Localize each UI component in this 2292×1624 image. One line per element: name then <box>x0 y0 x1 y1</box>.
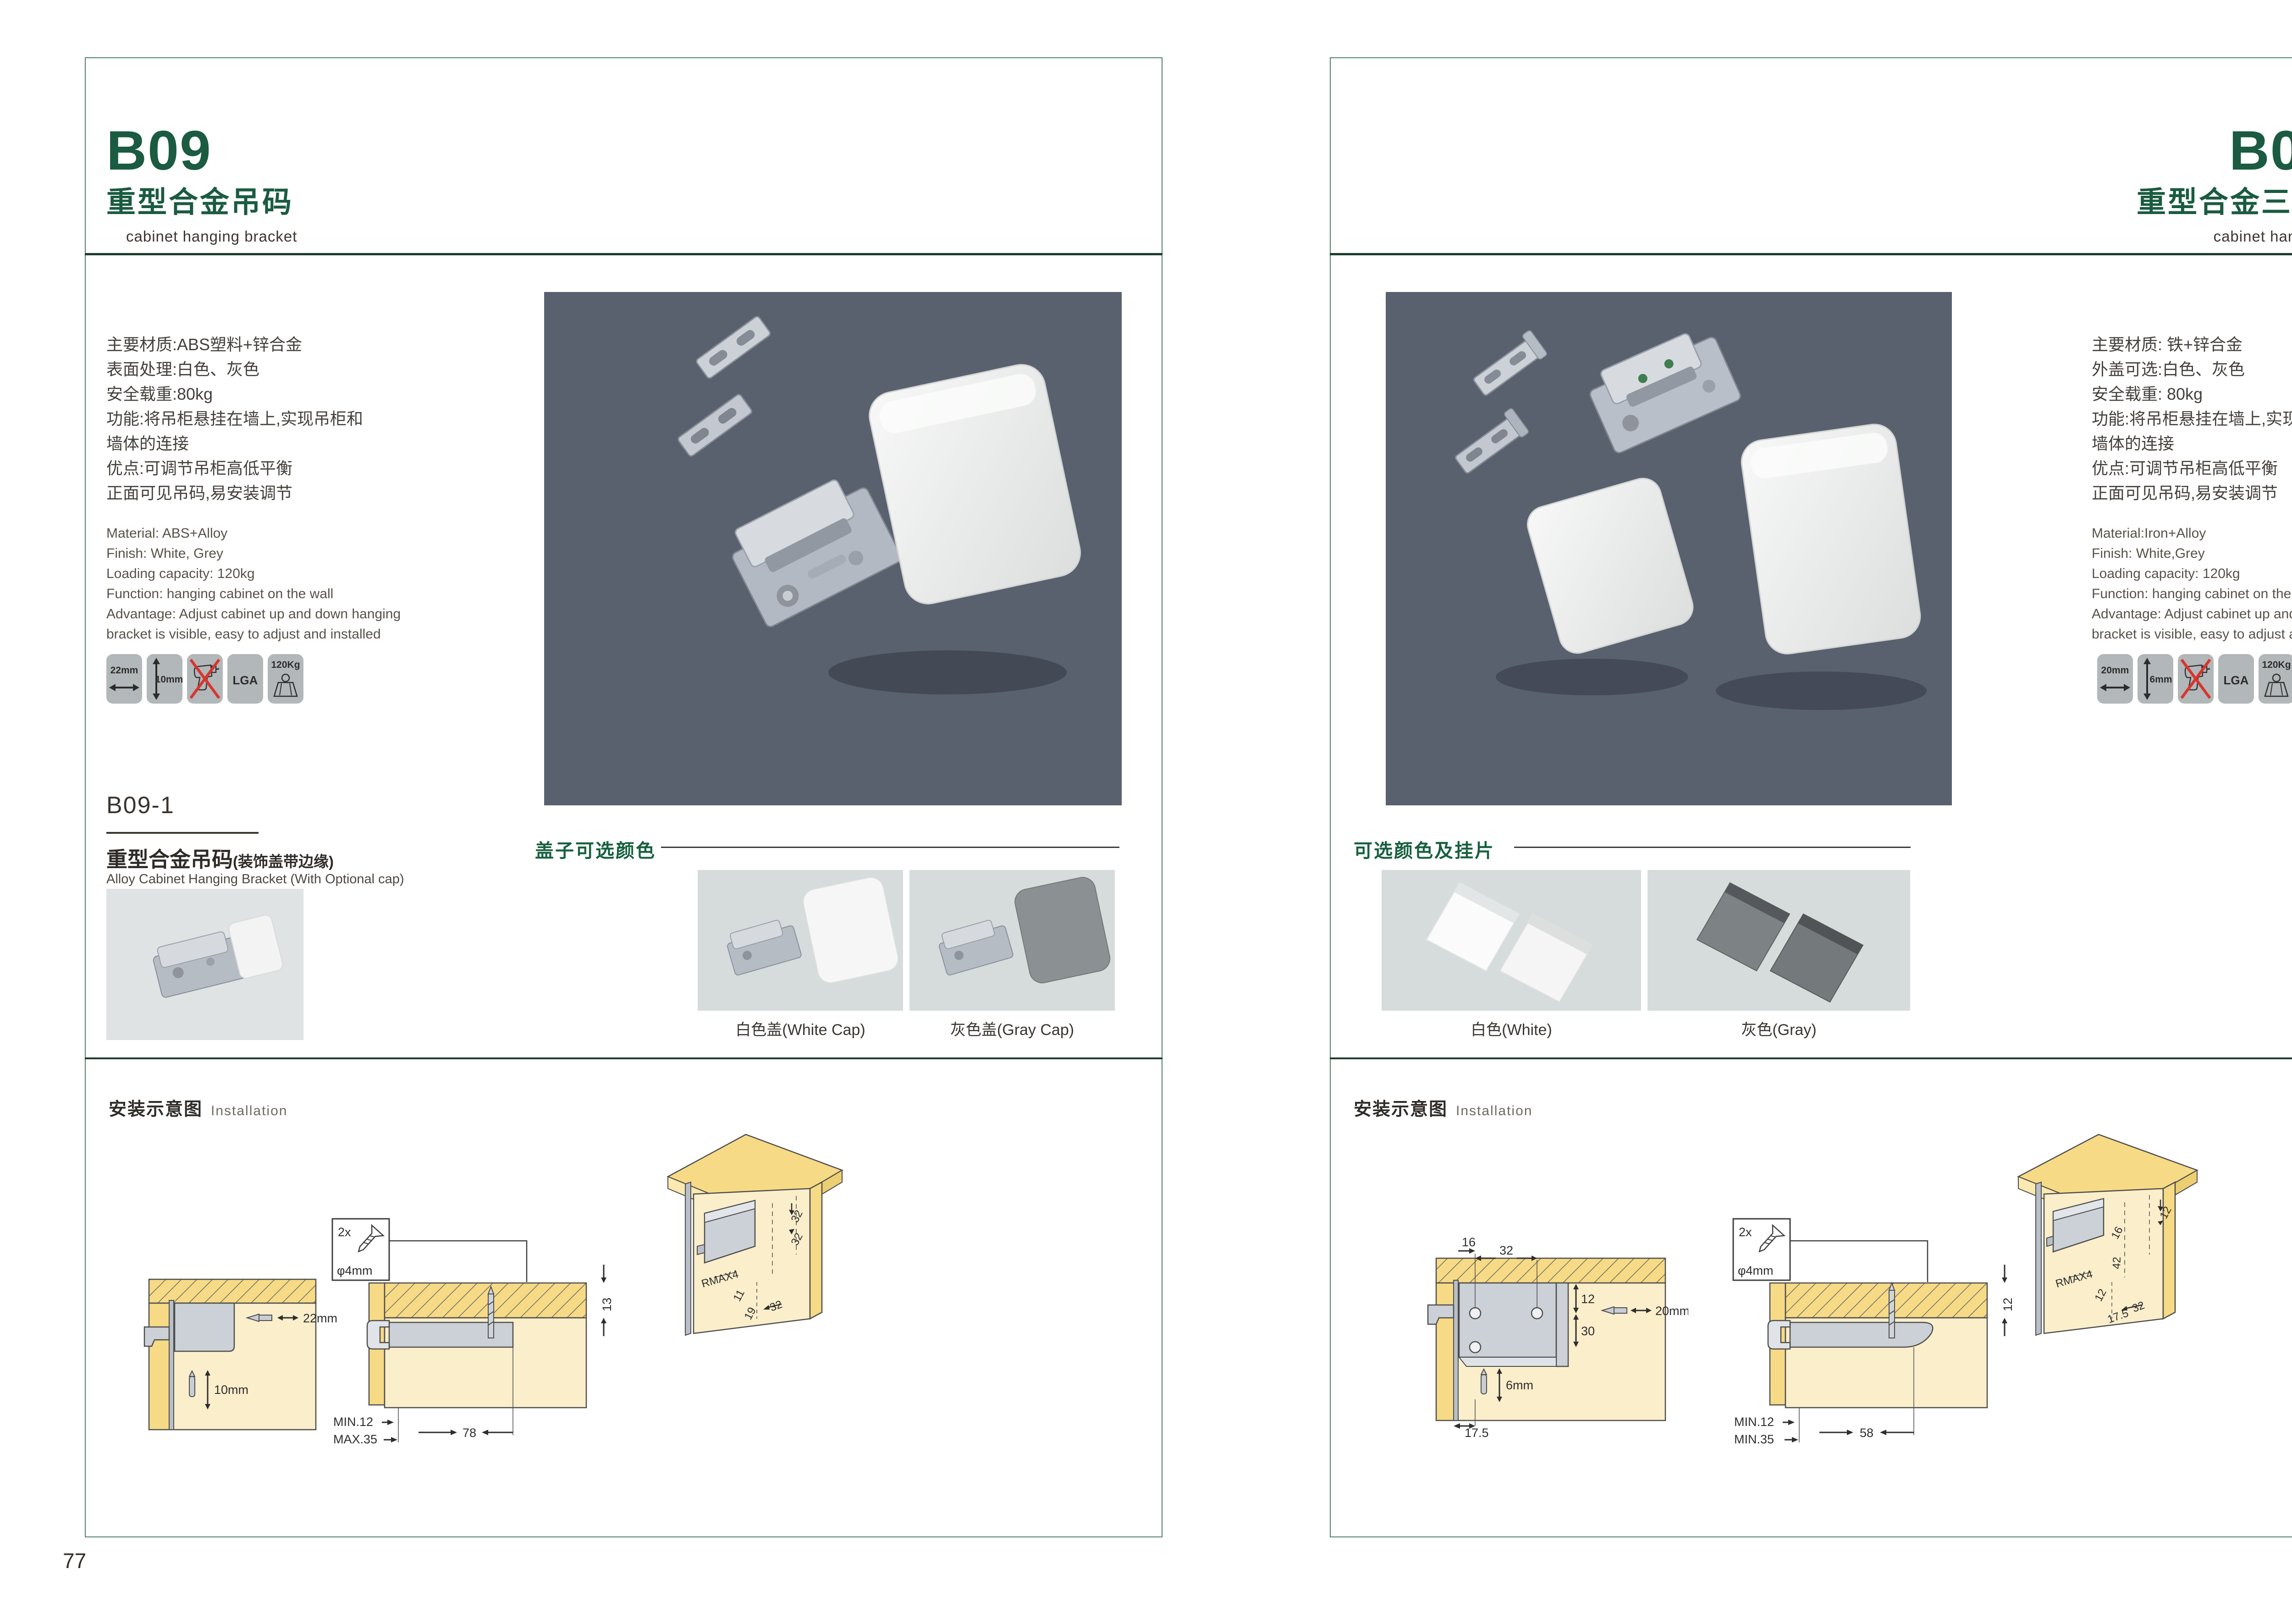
main-product-photo <box>1386 292 1952 805</box>
horizontal-arrow-icon <box>109 681 139 694</box>
product-code: B09-3 <box>2229 122 2292 178</box>
installation-title-en: Installation <box>1456 1103 1532 1118</box>
svg-text:2x: 2x <box>1739 1225 1752 1239</box>
white-cap <box>865 360 1085 608</box>
alloy-bracket-small-image <box>106 889 303 1040</box>
icon-no-drill-tile <box>2178 654 2214 704</box>
specs-en: Material:Iron+AlloyFinish: White,Grey Lo… <box>2092 523 2292 644</box>
specs-zh: 主要材质: 铁+锌合金外盖可选:白色、灰色 安全载重: 80kg功能:将吊柜悬挂… <box>2092 332 2292 506</box>
main-product-photo <box>544 292 1122 805</box>
installation-divider <box>85 1057 1163 1059</box>
white-cap-large <box>1739 422 1923 657</box>
svg-text:12: 12 <box>1581 1292 1595 1306</box>
icon-lga-tile: LGA <box>227 654 263 704</box>
sub-product-photo <box>106 889 303 1040</box>
product-title-zh: 重型合金三孔吊码 <box>2137 187 2292 217</box>
svg-text:42: 42 <box>2110 1257 2123 1270</box>
sub-product-code: B09-1 <box>106 792 175 819</box>
svg-text:10mm: 10mm <box>214 1383 248 1397</box>
angle-plate-1 <box>1469 330 1548 398</box>
specs-en: Material: ABS+AlloyFinish: White, Grey L… <box>106 523 565 644</box>
installation-title-en: Installation <box>211 1103 287 1118</box>
icon-load-tile: 120Kg <box>2259 654 2292 704</box>
perspective-diagram: 32 32 RMAX4 11 19 32 <box>659 1126 851 1346</box>
caps-section-title: 盖子可选颜色 <box>535 835 656 863</box>
gray-plate-thumb <box>1647 870 1910 1011</box>
page-panel-b09: B09 重型合金吊码 cabinet hanging bracket 主要材质:… <box>85 57 1163 1537</box>
icon-height-tile: 10mm <box>147 654 182 704</box>
weight-icon <box>272 672 299 699</box>
page-panel-b09-3: B09-3 重型合金三孔吊码 cabinet hanging bracket 主… <box>1330 57 2292 1537</box>
icon-width-tile: 22mm <box>106 654 142 704</box>
horizontal-arrow-icon <box>2100 681 2130 694</box>
svg-text:32: 32 <box>1499 1244 1513 1257</box>
bracket-body <box>722 468 903 628</box>
caps-section-title: 可选颜色及挂片 <box>1354 835 1495 863</box>
sub-product-title-zh: 重型合金吊码(装饰盖带边缘) <box>106 843 334 873</box>
white-cap-thumb <box>698 870 903 1011</box>
icon-lga-tile: LGA <box>2218 654 2254 704</box>
perspective-diagram: 12 16 42 RMAX4 12 17.5 32 <box>2009 1126 2206 1346</box>
catalog-spread: B09 重型合金吊码 cabinet hanging bracket 主要材质:… <box>0 0 2292 1624</box>
bracket-mechanism <box>1583 323 1742 454</box>
icon-height-tile: 6mm <box>2138 654 2173 704</box>
svg-text:17.5: 17.5 <box>1465 1426 1489 1438</box>
product-title-zh: 重型合金吊码 <box>106 187 293 217</box>
installation-title: 安装示意图Installation <box>109 1095 287 1121</box>
white-cap-label: 白色盖(White Cap) <box>698 1017 903 1040</box>
icon-width-tile: 20mm <box>2097 654 2133 704</box>
weight-icon <box>2263 672 2290 699</box>
product-code: B09 <box>106 122 212 178</box>
sub-product-rule <box>106 832 259 834</box>
product-title-en: cabinet hanging bracket <box>126 229 297 244</box>
b09-photo-composition <box>544 292 1122 805</box>
svg-text:2x: 2x <box>338 1225 351 1239</box>
header-divider <box>85 253 1163 255</box>
angle-plate-2 <box>1451 407 1529 476</box>
icon-load-tile: 120Kg <box>268 654 303 704</box>
sub-product-title-en: Alloy Cabinet Hanging Bracket (With Opti… <box>106 872 404 887</box>
gray-cap-thumb <box>909 870 1115 1011</box>
header-divider <box>1330 253 2292 255</box>
svg-text:MIN.35: MIN.35 <box>1734 1432 1774 1446</box>
svg-text:78: 78 <box>463 1426 476 1440</box>
specs-zh: 主要材质:ABS塑料+锌合金表面处理:白色、灰色 安全载重:80kg功能:将吊柜… <box>106 332 556 506</box>
white-plate-thumb <box>1382 870 1641 1011</box>
no-drill-icon <box>2181 658 2211 700</box>
svg-text:MIN.12: MIN.12 <box>333 1415 373 1429</box>
product-title-en: cabinet hanging bracket <box>2214 229 2292 244</box>
side-section-diagram: 2x φ4mm 13 MIN.12 MAX.35 78 <box>329 1213 631 1452</box>
side-section-diagram: 2x φ4mm 12 MIN.12 MIN.35 58 <box>1730 1213 2032 1452</box>
svg-text:16: 16 <box>1462 1236 1476 1249</box>
svg-text:20mm: 20mm <box>1655 1304 1688 1318</box>
svg-text:φ4mm: φ4mm <box>337 1264 373 1277</box>
caps-section-rule <box>1514 847 1911 848</box>
front-section-diagram: 22mm 10mm <box>141 1273 356 1438</box>
caps-section-rule <box>661 847 1119 848</box>
rail-plate-1 <box>695 315 771 379</box>
svg-text:58: 58 <box>1860 1426 1873 1440</box>
gray-cap-label: 灰色盖(Gray Cap) <box>909 1017 1115 1040</box>
svg-text:13: 13 <box>600 1298 614 1311</box>
svg-text:MIN.12: MIN.12 <box>1734 1415 1774 1429</box>
svg-text:30: 30 <box>1581 1324 1595 1338</box>
no-drill-icon <box>190 658 220 700</box>
gray-plate-label: 灰色(Gray) <box>1647 1017 1910 1040</box>
white-cap-front <box>1523 474 1697 657</box>
white-plate-label: 白色(White) <box>1382 1017 1641 1040</box>
icon-no-drill-tile <box>187 654 223 704</box>
b09-3-photo-composition <box>1386 292 1952 805</box>
svg-text:φ4mm: φ4mm <box>1738 1264 1774 1277</box>
screw-in-board <box>488 1287 494 1338</box>
front-section-diagram: 16 32 12 30 20mm 6mm 17.5 <box>1422 1236 1688 1438</box>
svg-text:MAX.35: MAX.35 <box>333 1432 377 1446</box>
page-number-left: 77 <box>63 1548 86 1573</box>
screw-in-board <box>1889 1283 1895 1338</box>
svg-text:6mm: 6mm <box>1506 1378 1533 1392</box>
rail-plate-2 <box>677 393 753 457</box>
installation-title: 安装示意图Installation <box>1354 1095 1532 1121</box>
installation-divider <box>1330 1057 2292 1059</box>
